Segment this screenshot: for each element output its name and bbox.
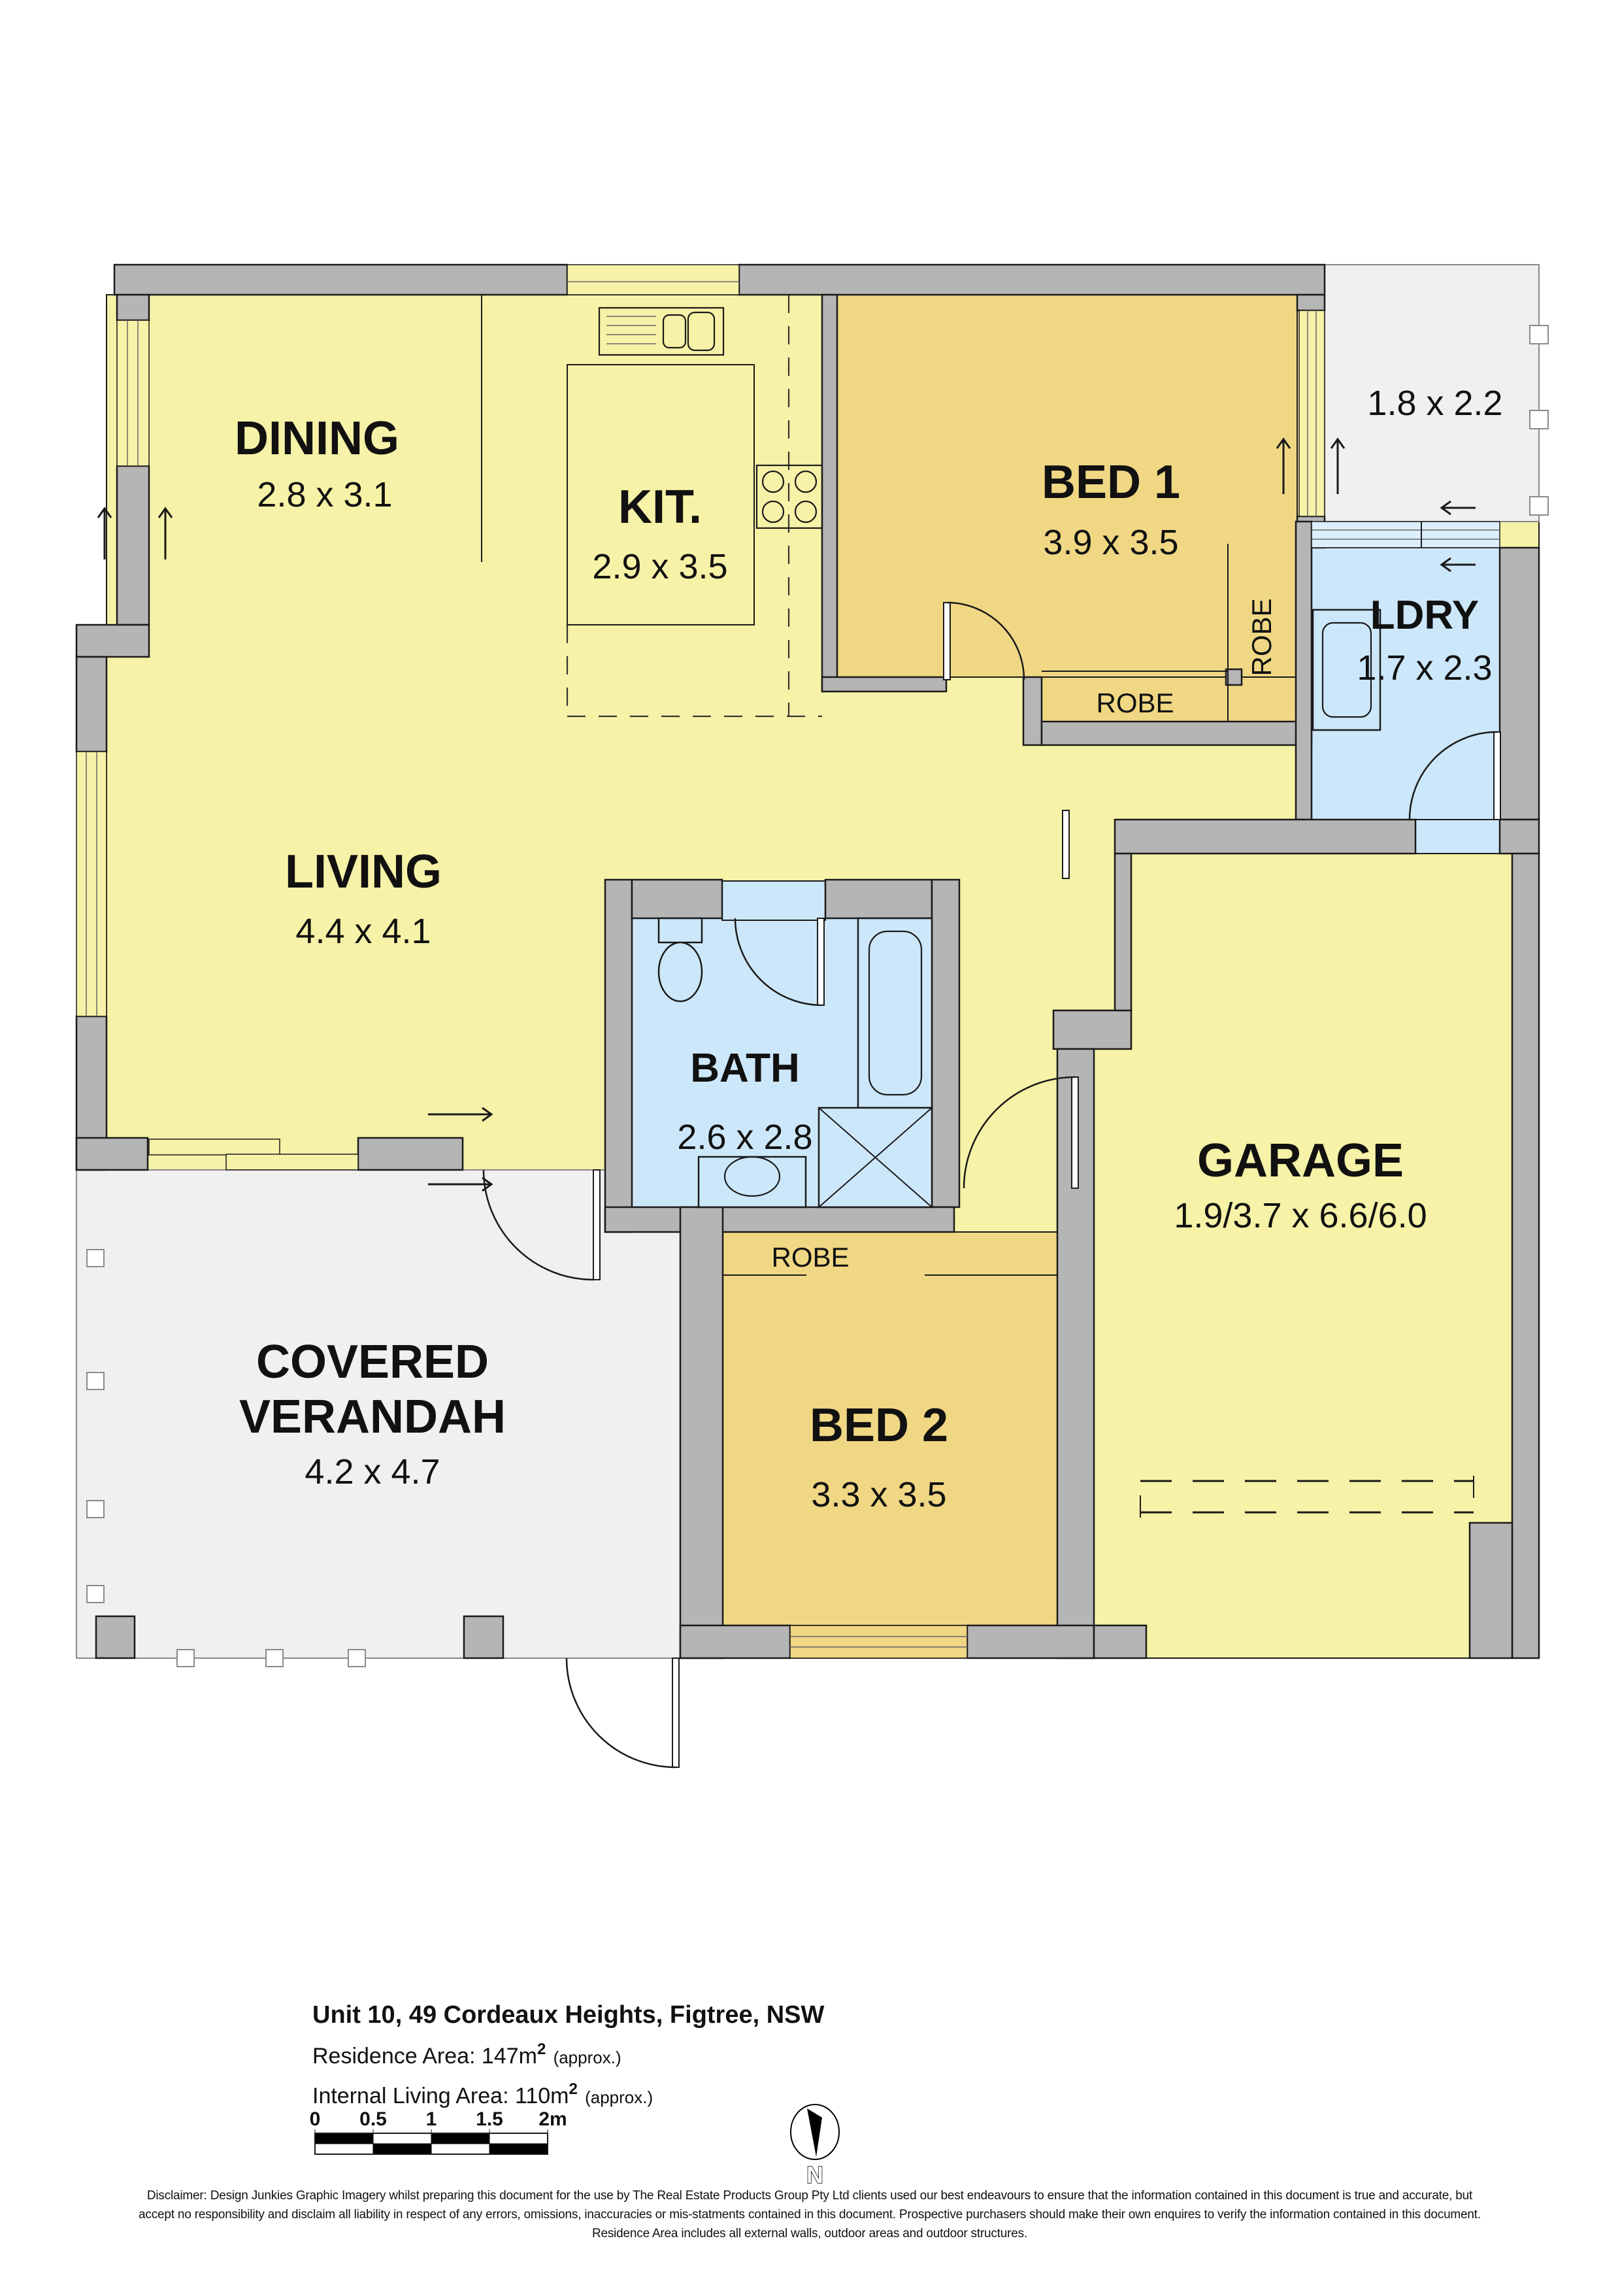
verandah-dims: 4.2 x 4.7 bbox=[305, 1452, 440, 1491]
bath-dims: 2.6 x 2.8 bbox=[677, 1118, 812, 1157]
vanity-basin bbox=[699, 1157, 806, 1207]
scale-tick-15: 1.5 bbox=[476, 2108, 503, 2130]
bed1-label: BED 1 bbox=[1042, 456, 1180, 508]
bath-door-opening bbox=[722, 881, 825, 920]
bed1-robe-label-horizontal: ROBE bbox=[1096, 688, 1174, 718]
stove-cooktop bbox=[757, 465, 822, 528]
bath-label: BATH bbox=[690, 1046, 800, 1091]
verandah-label-line1: COVERED bbox=[256, 1336, 489, 1388]
bathtub bbox=[858, 918, 932, 1108]
toilet bbox=[659, 918, 702, 1001]
bed1-dims: 3.9 x 3.5 bbox=[1043, 523, 1178, 562]
living-dims: 4.4 x 4.1 bbox=[295, 912, 431, 951]
footer: Unit 10, 49 Cordeaux Heights, Figtree, N… bbox=[139, 2001, 1481, 2240]
internal-area-line: Internal Living Area: 110m2 (approx.) bbox=[312, 2080, 653, 2108]
disclaimer: Disclaimer: Design Junkies Graphic Image… bbox=[139, 2189, 1481, 2240]
laundry-window bbox=[1312, 522, 1500, 548]
laundry-door-opening bbox=[1415, 820, 1500, 854]
dining-dims: 2.8 x 3.1 bbox=[257, 475, 392, 514]
bed2-robe-label: ROBE bbox=[771, 1242, 849, 1273]
scale-tick-2m: 2m bbox=[538, 2108, 567, 2130]
residence-area-line: Residence Area: 147m2 (approx.) bbox=[312, 2040, 621, 2069]
verandah-label-line2: VERANDAH bbox=[239, 1391, 506, 1443]
laundry-dims: 1.7 x 2.3 bbox=[1357, 648, 1492, 688]
scale-tick-1: 1 bbox=[426, 2108, 437, 2130]
garage-internal-door-leaf bbox=[1063, 810, 1069, 878]
dining-window bbox=[117, 320, 149, 466]
disclaimer-line-3: Residence Area includes all external wal… bbox=[592, 2227, 1027, 2240]
laundry-label: LDRY bbox=[1370, 593, 1479, 638]
garage-dims: 1.9/3.7 x 6.6/6.0 bbox=[1174, 1196, 1427, 1235]
kitchen-label: KIT. bbox=[618, 481, 702, 533]
shower bbox=[819, 1108, 932, 1207]
north-label: N bbox=[806, 2161, 823, 2188]
north-arrow: N bbox=[791, 2105, 839, 2188]
garage-label: GARAGE bbox=[1197, 1135, 1404, 1187]
floor-plan-page: DINING 2.8 x 3.1 KIT. 2.9 x 3.5 LIVING 4… bbox=[0, 0, 1620, 2293]
bed2-window bbox=[790, 1625, 967, 1658]
address-title: Unit 10, 49 Cordeaux Heights, Figtree, N… bbox=[312, 2001, 825, 2029]
porch-dims: 1.8 x 2.2 bbox=[1367, 384, 1502, 423]
floor-plan-drawing: DINING 2.8 x 3.1 KIT. 2.9 x 3.5 LIVING 4… bbox=[0, 0, 1620, 2293]
bed2-label: BED 2 bbox=[810, 1399, 948, 1452]
kitchen-dims: 2.9 x 3.5 bbox=[592, 547, 727, 586]
kitchen-sink bbox=[599, 308, 723, 355]
scale-tick-05: 0.5 bbox=[359, 2108, 387, 2130]
disclaimer-line-1: Disclaimer: Design Junkies Graphic Image… bbox=[147, 2189, 1473, 2203]
bed1-robe-label-vertical: ROBE bbox=[1246, 598, 1277, 676]
living-label: LIVING bbox=[285, 846, 442, 898]
verandah-exterior-door bbox=[567, 1658, 679, 1767]
bed2-dims: 3.3 x 3.5 bbox=[811, 1475, 946, 1514]
disclaimer-line-2: accept no responsibility and disclaim al… bbox=[139, 2208, 1481, 2221]
scale-bar: 0 0.5 1 1.5 2m bbox=[310, 2108, 567, 2154]
bed1-window bbox=[1299, 310, 1325, 516]
dining-label: DINING bbox=[235, 412, 399, 465]
living-window bbox=[76, 752, 107, 1016]
scale-tick-0: 0 bbox=[310, 2108, 321, 2130]
kitchen-niche bbox=[567, 265, 739, 295]
